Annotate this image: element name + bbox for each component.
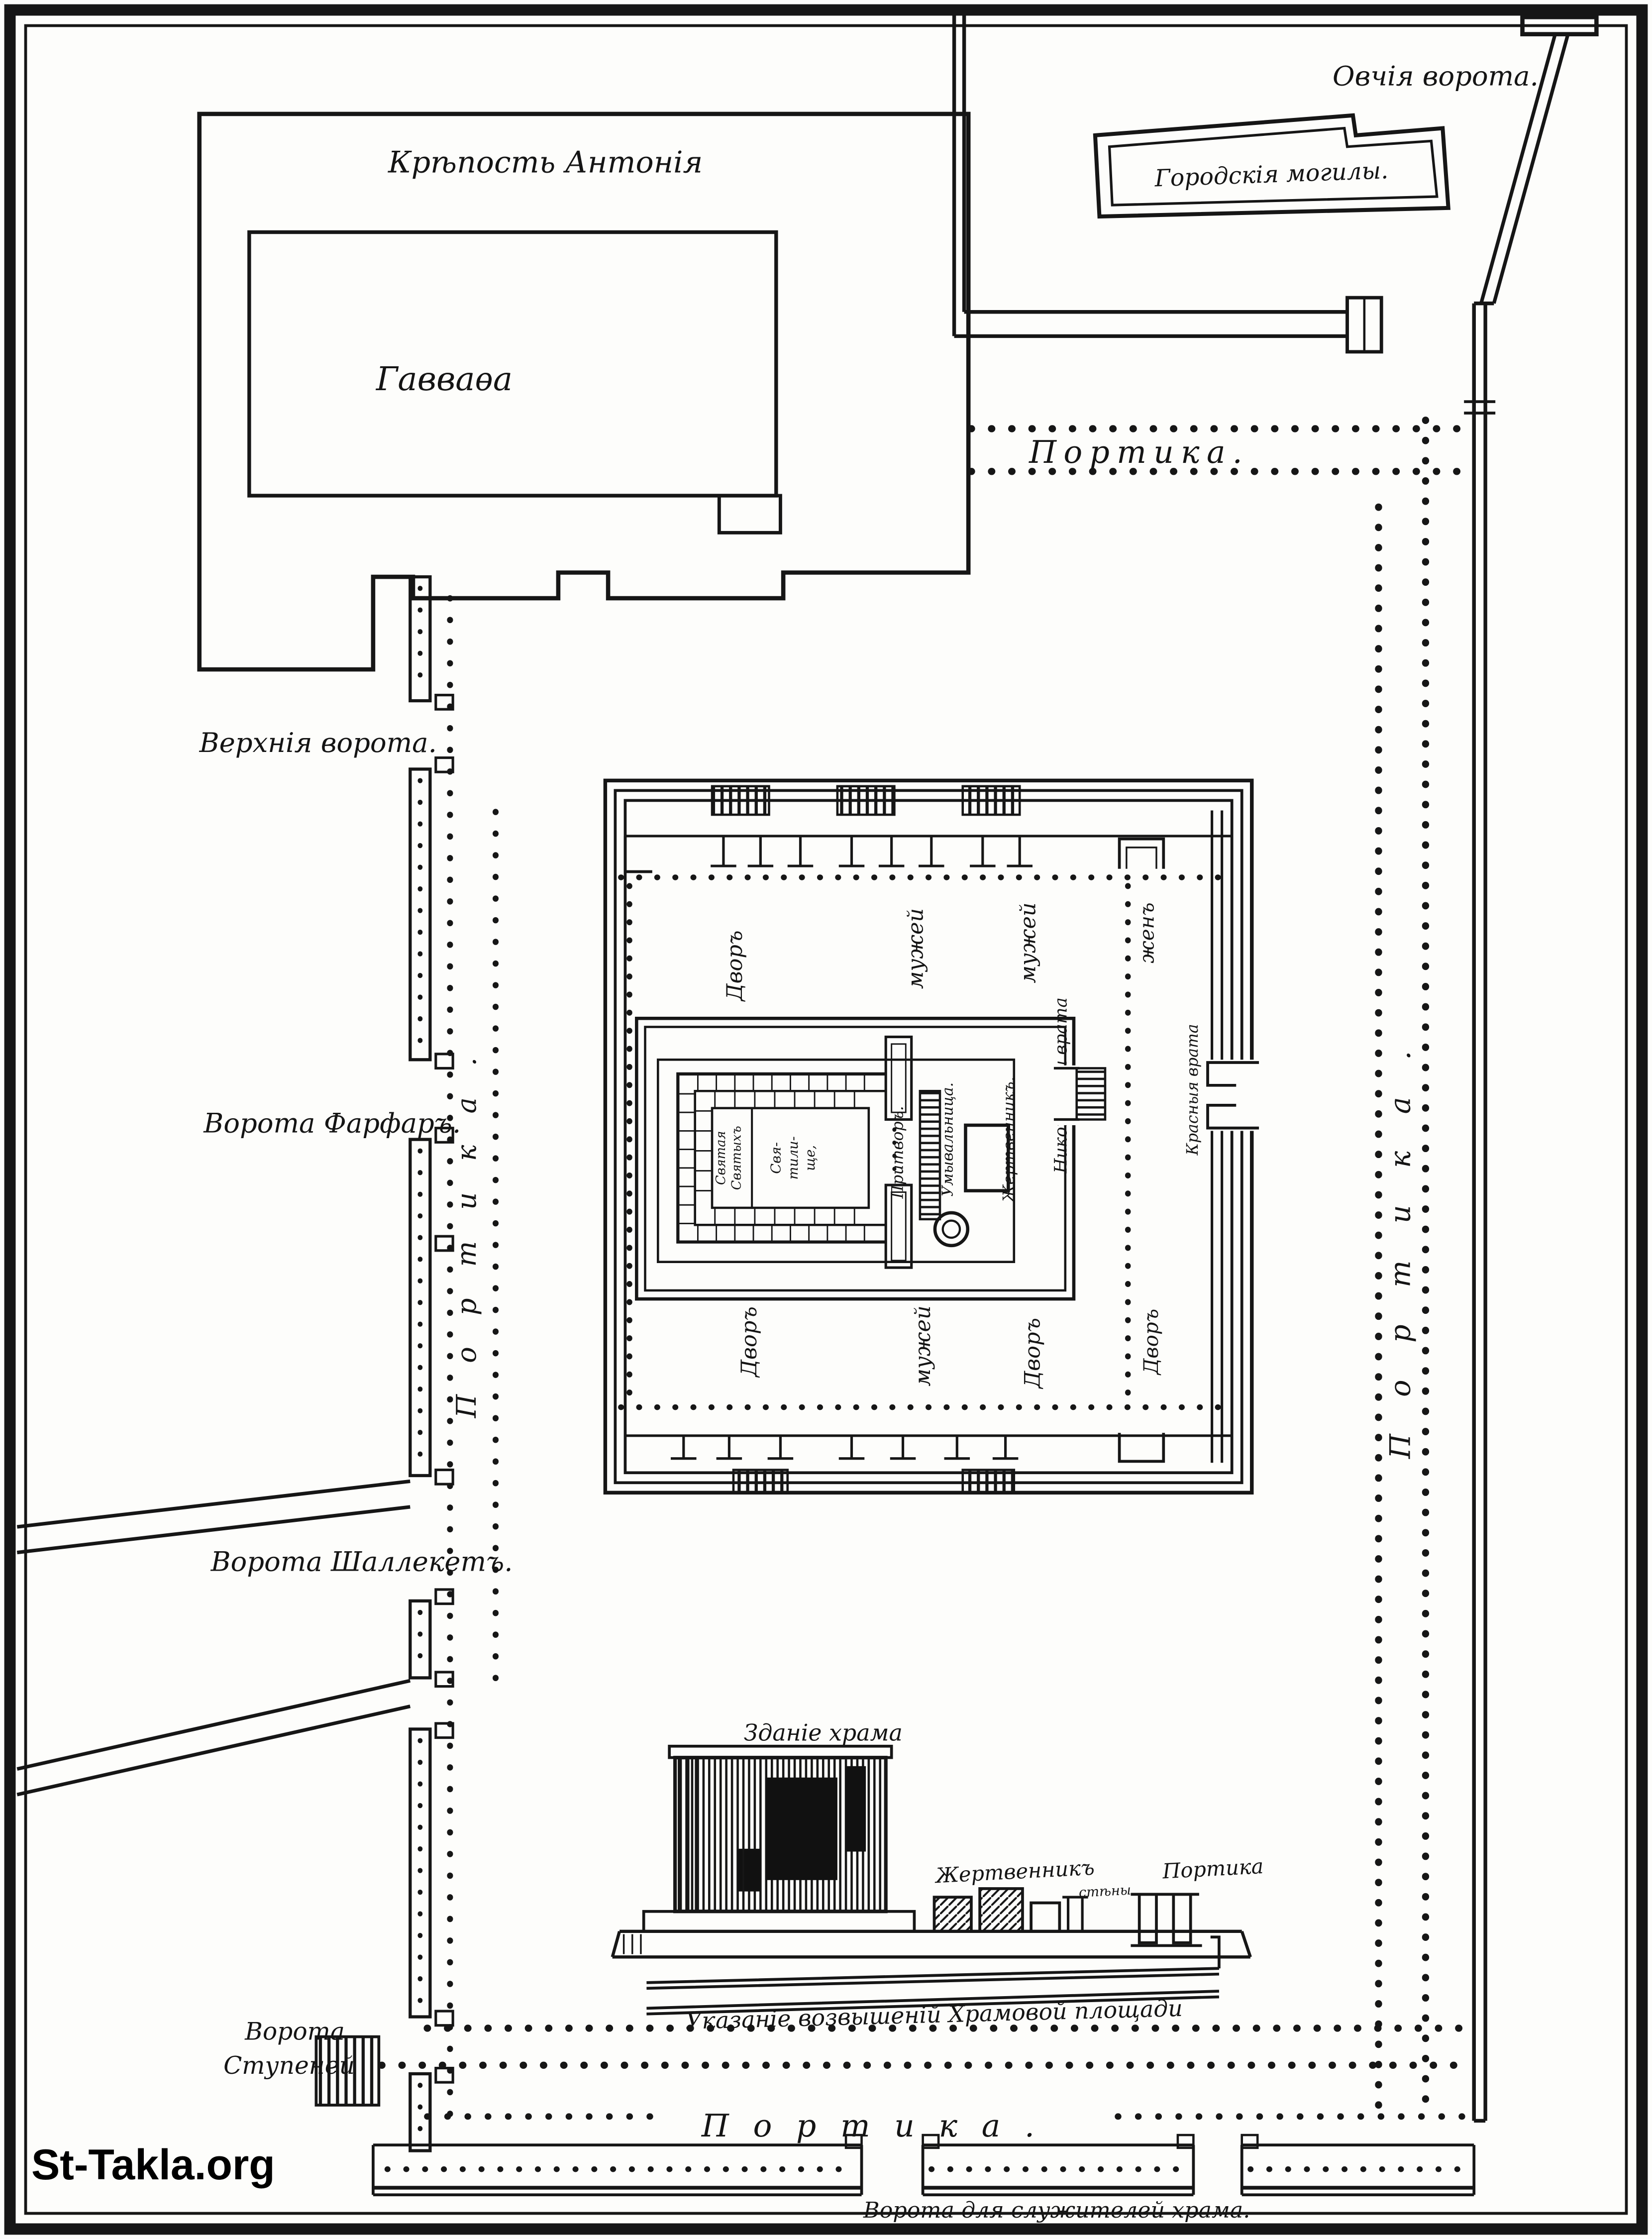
holy-of-holies-label-2: Святыхъ [729, 1126, 744, 1190]
court-top-label: Дворъ [723, 931, 747, 1002]
site-watermark: St-Takla.org [31, 2141, 275, 2189]
altar-plan-label: Жертвенникъ. [1000, 1076, 1018, 1203]
farfar-gate-label: Ворота Фарфаръ. [203, 1107, 461, 1139]
altar-elevation [934, 1889, 1088, 1931]
portico-right-label: Портика. [1384, 1014, 1417, 1459]
antonia-fortress-label: Крѣпость Антонія [388, 145, 703, 180]
court-bottom-men-label: мужей [911, 1305, 935, 1386]
altar-plan: Жертвенникъ. [965, 1076, 1018, 1203]
steps-gate-label-line2: Ступеней [223, 2052, 355, 2080]
portico-top-label: Портика. [1029, 434, 1249, 470]
porticoes: Портика. Портика. Портика. Портика. [382, 420, 1467, 2144]
temple-map-page: Крѣпость Антонія Гавваѳа Овчія ворота. Г… [0, 0, 1652, 2239]
servants-gate-label: Ворота для служителей храма. [863, 2198, 1250, 2223]
court-top-men2-label: мужей [1016, 902, 1041, 983]
gabbatha-label: Гавваѳа [375, 360, 513, 398]
temple-building-label: Зданіе храма [744, 1719, 903, 1746]
laver: Умывальница. [935, 1082, 968, 1246]
upper-gate-label: Верхнія ворота. [199, 727, 437, 758]
red-gate-label: Красныя врата [1184, 1024, 1202, 1156]
temple-steps [920, 1091, 940, 1219]
women-court-bottom-label: Дворъ [1140, 1309, 1163, 1376]
women-court-top-label: женъ [1136, 902, 1158, 963]
sanctuary-label-3: ще, [803, 1145, 818, 1171]
sanctuary-label-1: Свя- [768, 1142, 784, 1174]
sheep-gate-label: Овчія ворота. [1333, 61, 1539, 92]
east-wall [1464, 304, 1495, 2121]
porch-label: Притворъ. [889, 1106, 907, 1199]
temple-court: Святая Святыхъ Свя- тили- ще, Притворъ. … [636, 1018, 1105, 1299]
temple-plan-map: Крѣпость Антонія Гавваѳа Овчія ворота. Г… [0, 0, 1652, 2239]
sanctuary-label-2: тили- [786, 1136, 801, 1179]
walls-label: стѣны [1078, 1883, 1131, 1901]
portico-elevation [1131, 1894, 1202, 1945]
south-wall: Ворота для служителей храма. [373, 2135, 1474, 2223]
city-graves: Городскія могилы. [1095, 115, 1448, 216]
city-graves-label: Городскія могилы. [1154, 157, 1389, 192]
holy-of-holies-label-1: Святая [714, 1131, 728, 1185]
causeway-north [17, 1481, 410, 1552]
portico-elevation-label: Портика [1161, 1854, 1264, 1884]
temple-porch: Притворъ. [886, 1037, 912, 1268]
west-wall: Верхнія ворота. Ворота Фарфаръ. Ворота Ш… [17, 577, 513, 2150]
elevation-drawing: Зданіе храма [613, 1719, 1264, 2034]
court-bottom2-label: Дворъ [1020, 1318, 1045, 1389]
shallecheth-gate-label: Ворота Шаллекетъ. [210, 1546, 513, 1578]
nicanor-gate-steps [1077, 1068, 1105, 1119]
gabbatha-platform [249, 232, 776, 495]
antonia-fortress: Крѣпость Антонія Гавваѳа [200, 114, 969, 669]
laver-label: Умывальница. [939, 1082, 957, 1197]
temple-building-elevation [669, 1746, 891, 1912]
court-top-men-label: мужей [904, 908, 929, 989]
portico-bottom-label: Портика. [701, 2108, 1059, 2144]
steps-gate-label-line1: Ворота [244, 2018, 345, 2045]
court-bottom-label: Дворъ [737, 1306, 762, 1378]
portico-left-label: Портика. [451, 1026, 482, 1418]
causeway-south [17, 1681, 410, 1795]
altar-elevation-label: Жертвенникъ [933, 1855, 1095, 1888]
